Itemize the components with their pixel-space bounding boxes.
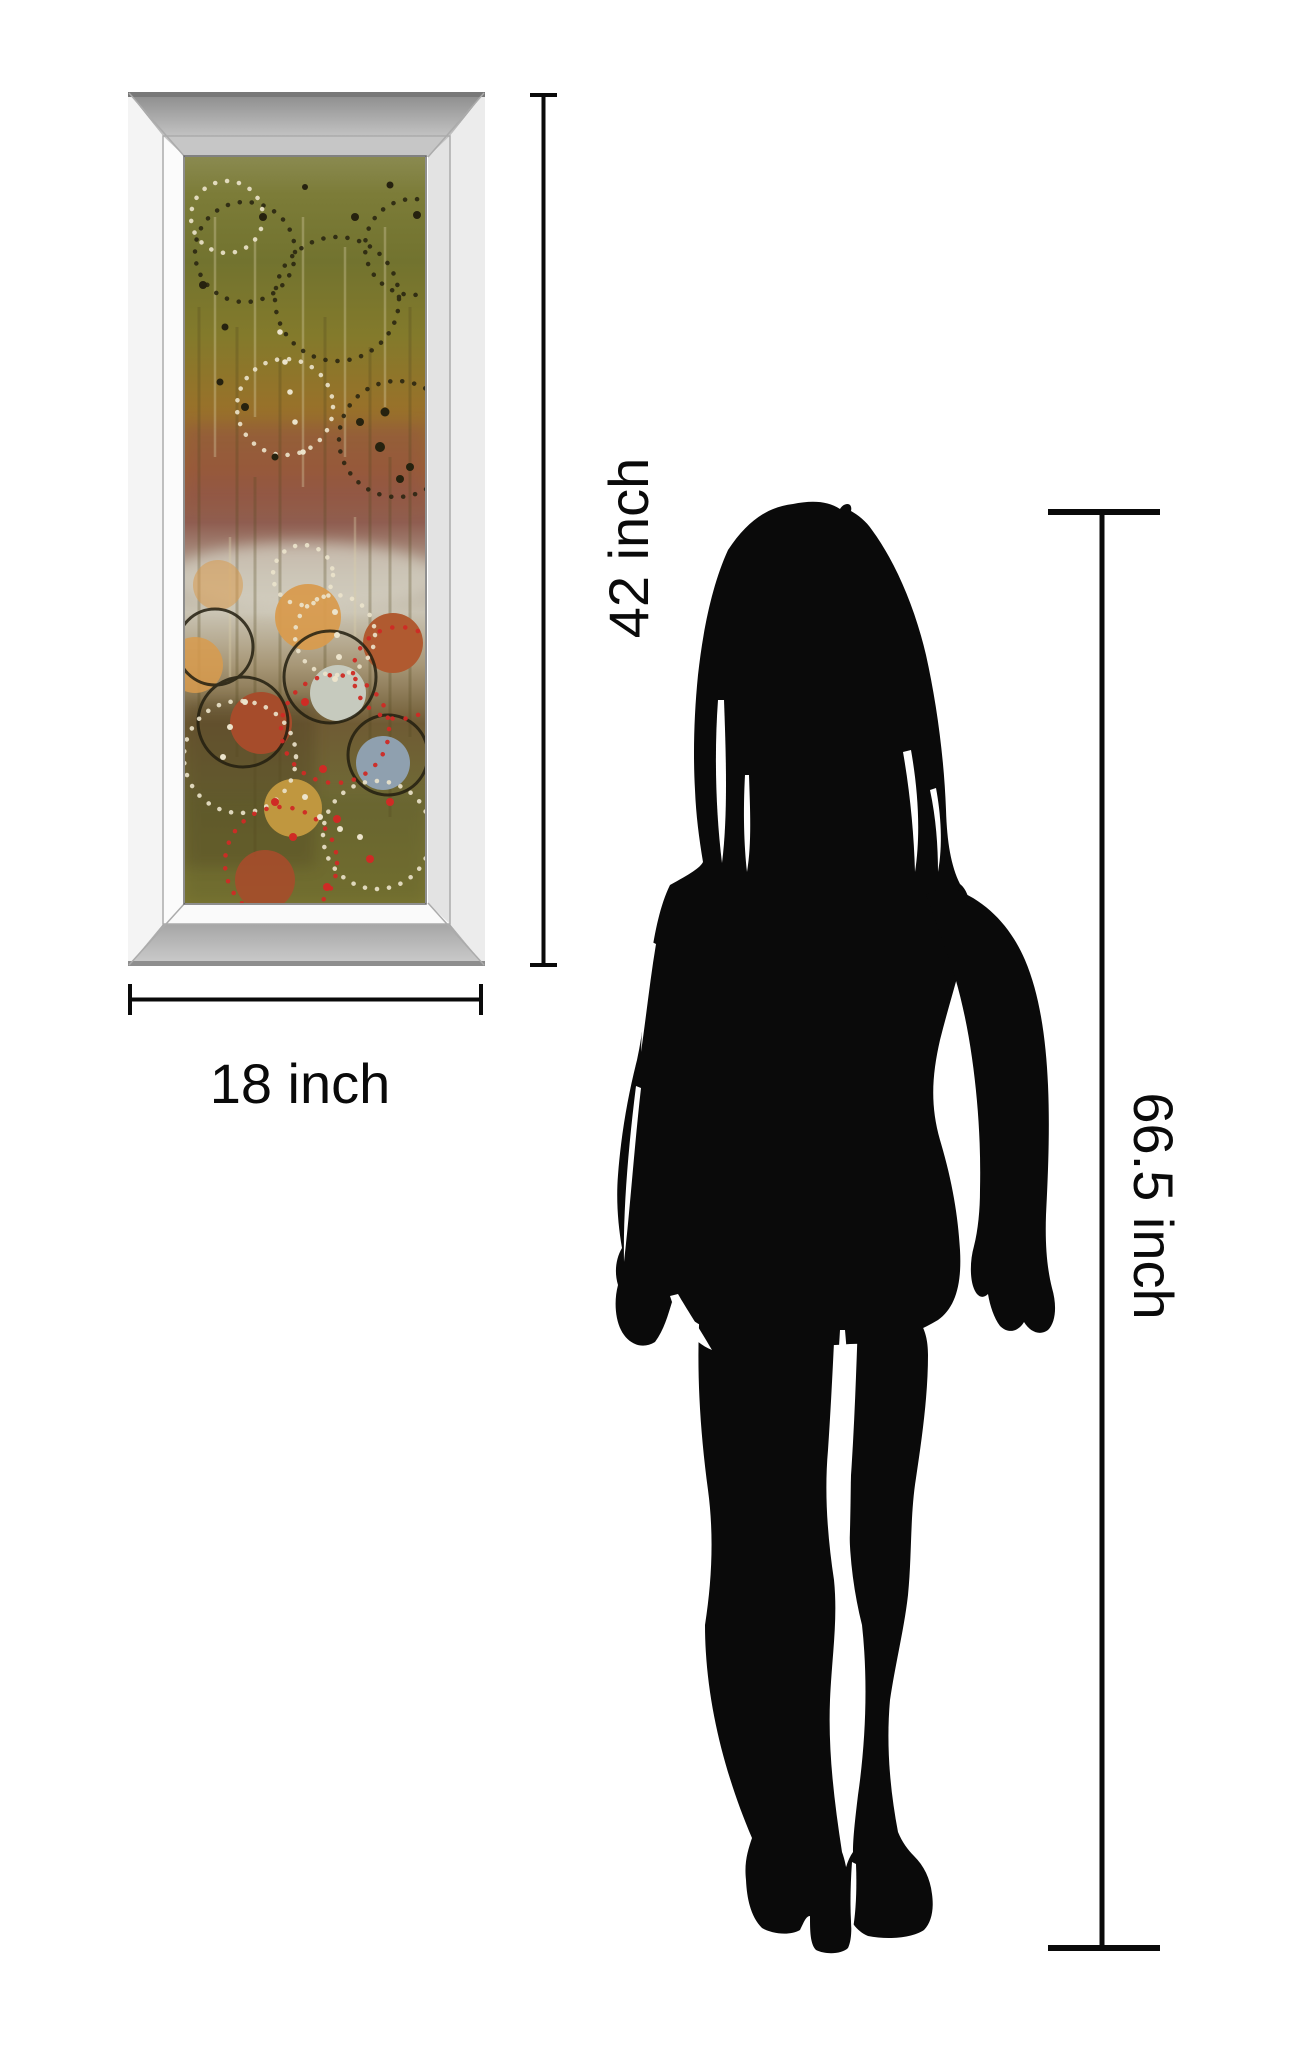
framed-artwork [128, 92, 485, 966]
size-comparison-diagram: 42 inch 18 inch 66.5 inch [0, 0, 1296, 2048]
frame-bottom-edge [128, 961, 485, 966]
artwork-width-label: 18 inch [210, 1052, 391, 1115]
frame-bevel-right [428, 136, 450, 924]
abstract-art-print [167, 157, 461, 919]
frame-bevel-bottom [163, 903, 450, 924]
art-circle [235, 850, 295, 910]
frame-top-face [128, 92, 485, 136]
art-circle [363, 613, 423, 673]
person-height-label: 66.5 inch [1122, 1092, 1185, 1319]
frame-bevel-top [163, 136, 450, 157]
frame-right-face [450, 92, 485, 966]
frame-top-edge [128, 92, 485, 97]
artwork-height-label: 42 inch [597, 458, 660, 639]
frame-bevel-left [163, 136, 185, 924]
frame-left-face [128, 92, 163, 966]
frame-bottom-face [128, 924, 485, 966]
art-circle [275, 584, 341, 650]
art-circle [193, 560, 243, 610]
